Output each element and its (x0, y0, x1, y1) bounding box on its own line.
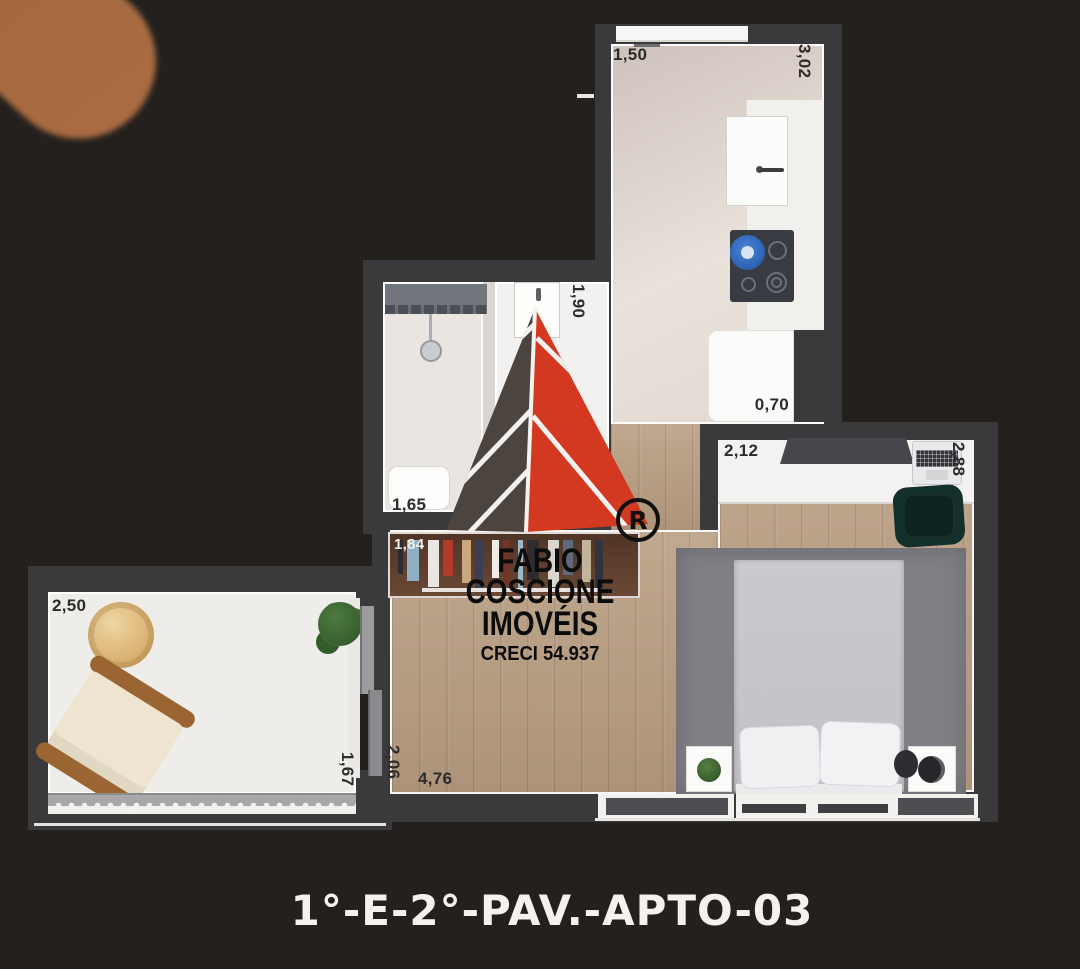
shower-arm (429, 314, 432, 340)
faucet-arm (760, 168, 784, 172)
burner (771, 277, 782, 288)
dimension-tick (577, 94, 594, 98)
dim-bathroom: 1,65 (392, 496, 426, 513)
brand-creci-number: CRECI 54.937 (411, 644, 669, 664)
balcony-sill (48, 806, 356, 814)
sliding-door-panel (368, 690, 382, 776)
alarm-clock (918, 756, 945, 783)
wall-niche (794, 330, 824, 422)
pillow-left (739, 725, 821, 790)
balcony-outer-line (34, 823, 386, 826)
burner (768, 241, 787, 260)
desk-chair-seat (903, 494, 955, 538)
registered-trademark-icon: R (616, 498, 660, 542)
balcony-railing (48, 793, 356, 806)
wall-balcony-left (28, 566, 48, 828)
dim-living-height: 2,06 (385, 745, 402, 779)
dim-balcony-height: 1,67 (339, 752, 356, 786)
wall-bedroom-right (974, 422, 998, 822)
bedside-lamp (894, 750, 918, 778)
wall-bath-left (363, 260, 383, 534)
living-window-panel (606, 798, 728, 815)
dim-living-width: 4,76 (418, 770, 452, 787)
dim-kitchen-height: 3,02 (796, 44, 813, 78)
laptop-trackpad (926, 470, 948, 480)
balcony-plant (318, 602, 362, 646)
bedroom-window-panel (898, 798, 974, 815)
dim-desk: 2,12 (724, 442, 758, 459)
kitchen-window (616, 26, 748, 42)
sliding-door-panel (360, 606, 374, 694)
brand-name-line1: FABIO COSCIONE (425, 546, 655, 608)
plant-nightstand (697, 758, 721, 782)
burner (741, 277, 756, 292)
brand-watermark: FABIO COSCIONE IMOVÉIS CRECI 54.937 (400, 546, 680, 664)
dim-fridge: 0,70 (737, 396, 789, 413)
window-slat (742, 804, 806, 813)
brand-logo-building (438, 298, 648, 534)
brand-name-line2: IMOVÉIS (425, 609, 655, 640)
window-outer-line (595, 818, 980, 821)
wall-bedroom-top (700, 422, 998, 440)
floor-plan-image: 1,50 3,02 0,70 1,90 1,65 1,84 98 2,12 2,… (0, 0, 1080, 969)
decorative-gradient-blob (0, 0, 188, 171)
kitchen-sink (726, 116, 788, 206)
dim-balcony-width: 2,50 (52, 597, 86, 614)
pot-lid-knob (741, 246, 754, 259)
desk-shelf (780, 438, 914, 464)
pillow-right (819, 721, 901, 788)
wall-bath-top (363, 260, 625, 282)
wall-kitchen-right (824, 24, 842, 442)
dim-bedroom-height: 2,88 (950, 442, 967, 476)
plan-caption: 1°-E-2°-PAV.-APTO-03 (0, 886, 1080, 935)
wall-balcony-top (28, 566, 392, 592)
dim-kitchen-window: 1,50 (613, 46, 647, 63)
window-slat (818, 804, 888, 813)
